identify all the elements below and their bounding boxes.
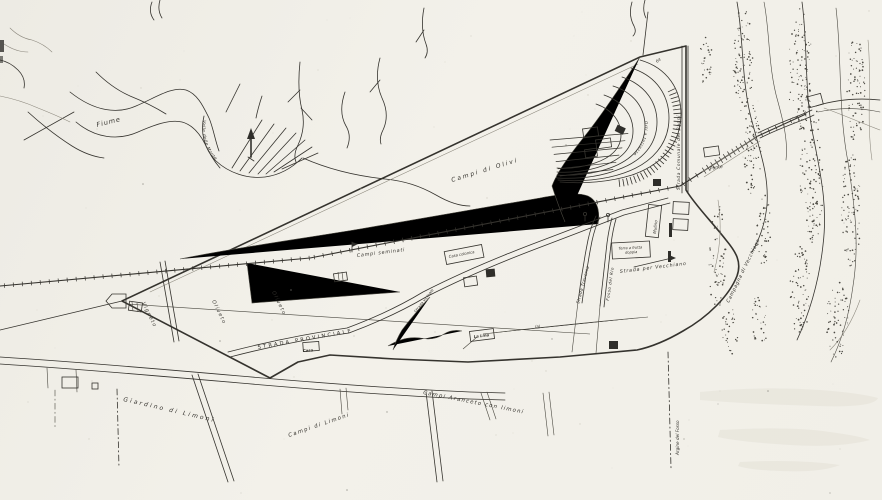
riverbed-channels — [714, 2, 872, 362]
house — [62, 377, 78, 388]
boundary-dash-line-east — [668, 352, 671, 468]
label-terra-frutta: Terra a frutta doppia — [618, 245, 643, 255]
label-valle: Valle delle Monte — [200, 120, 217, 162]
house — [673, 202, 690, 215]
house — [673, 219, 689, 231]
label-campi-aranceto: Campi Aranceto con limoni — [423, 390, 525, 416]
building-filled — [609, 341, 618, 349]
estate-boundary — [122, 46, 739, 378]
survey-line — [483, 317, 648, 334]
label-la-lina: La Lina — [474, 332, 490, 339]
page-showthrough — [700, 388, 878, 471]
hand-drawn-map: Fiume Valle delle Monte Campi di Olivi C… — [0, 0, 882, 500]
label-giardino-limoni: Giardino di Limoni — [123, 396, 216, 424]
terrace-group — [550, 60, 681, 187]
label-strada-comunale: Strada Comunale dei Bagni — [676, 115, 682, 190]
label-campi-seminati: Campi seminati — [357, 247, 406, 259]
boundary-dash-line-west — [117, 389, 119, 468]
label-nota-a: (a) — [535, 324, 541, 329]
label-fosso-rio: Fosso del Rio — [605, 267, 615, 301]
upland-streams — [150, 0, 648, 162]
label-ponte: Ponte — [709, 164, 723, 172]
label-argine: Argine del Fosso — [675, 420, 680, 456]
building-filled — [486, 269, 496, 278]
label-strada-vecchiano: Strada per Vecchiano — [620, 261, 688, 275]
river-group — [0, 28, 470, 206]
label-campi-limoni: Campi di Limoni — [288, 412, 351, 439]
house — [464, 276, 478, 287]
railway-line — [0, 114, 806, 286]
field-lines — [126, 57, 648, 349]
delta-hatch-lines — [232, 120, 318, 174]
estate-boundary-group — [0, 46, 739, 378]
svg-text:Valle delle Monte: Valle delle Monte — [200, 120, 217, 162]
label-mulino: Mulino — [652, 219, 658, 234]
sketch-map-canvas: Fiume Valle delle Monte Campi di Olivi C… — [0, 0, 882, 500]
label-fiume: Fiume — [96, 115, 122, 129]
label-quota-64: 64 — [655, 57, 662, 64]
shed-filled — [615, 125, 626, 135]
stream-east — [303, 158, 470, 206]
terrace-hatch-band — [619, 89, 681, 187]
label-casa: Casa — [303, 347, 314, 353]
riverbed-gravel-stipple — [700, 8, 865, 357]
fosso-roads — [572, 216, 676, 353]
label-campagna-vecchiano: Campagna di Vecchiano — [725, 238, 761, 304]
house — [92, 383, 98, 389]
label-campi-olivi: Campi di Olivi — [451, 157, 520, 184]
river-upper-bank — [70, 89, 219, 151]
building-filled — [653, 179, 661, 186]
house — [704, 146, 720, 157]
scan-edge-marks — [0, 40, 4, 63]
label-oliveto-1: Oliveto — [210, 299, 227, 325]
buildings-group — [62, 93, 823, 389]
